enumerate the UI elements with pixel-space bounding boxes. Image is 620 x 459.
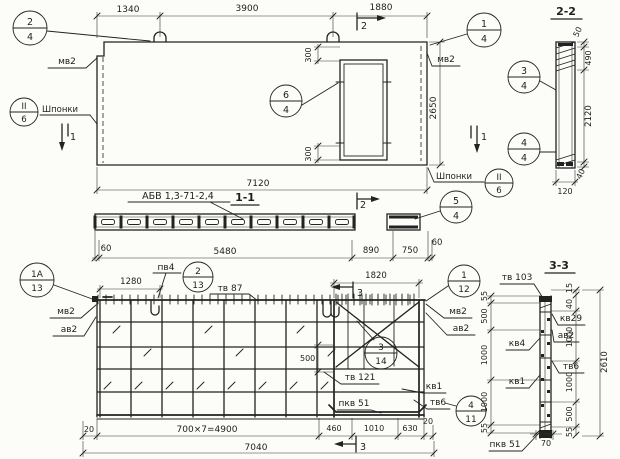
dim-s33R-40: 40 xyxy=(565,299,574,309)
callout-1a-13: 1А 13 xyxy=(20,263,95,300)
section-2-2-top-band xyxy=(558,43,573,46)
cut-2-lower-arrow xyxy=(371,196,380,202)
section-2-2-inner-lines xyxy=(559,42,572,168)
svg-text:1А: 1А xyxy=(31,270,44,280)
dim-300-bottom: 300 xyxy=(304,146,313,161)
section-2-2-title: 2-2 xyxy=(556,5,576,18)
cut-1-left-arrow xyxy=(59,142,65,151)
callout-1-12: 1 12 xyxy=(426,265,480,301)
label-kv4: кв4 xyxy=(509,339,526,349)
label-tv103: тв 103 xyxy=(502,273,533,283)
svg-text:4: 4 xyxy=(521,153,527,164)
cut-3-bottom-arrow xyxy=(334,441,343,447)
dim-1010: 1010 xyxy=(364,424,384,433)
label-shponki-left: Шпонки xyxy=(42,105,78,115)
cut-1-left-label: 1 xyxy=(70,132,76,143)
dim-70: 70 xyxy=(541,439,551,448)
rebar-plan: 1280 1820 пв4 тв 87 мв2 ав2 мв2 ав2 3 3 … xyxy=(50,263,475,457)
svg-text:14: 14 xyxy=(375,357,387,367)
cut-2-top-label: 2 xyxy=(361,21,367,32)
svg-text:6: 6 xyxy=(496,186,501,196)
dim-s22-2120: 2120 xyxy=(584,105,594,127)
dim-s33L-55a: 55 xyxy=(480,291,489,301)
dim-7120: 7120 xyxy=(247,179,270,189)
dim-s33L-500: 500 xyxy=(480,308,489,323)
svg-text:6: 6 xyxy=(21,115,26,125)
section-1-1: АБВ 1,3-71-2,4 1-1 2 60 5480 890 750 60 xyxy=(92,191,442,261)
dim-s33L-1000a: 1000 xyxy=(480,345,489,365)
mesh-vertical-bars xyxy=(100,300,317,417)
dim-s11-60L: 60 xyxy=(101,244,112,254)
dim-1280: 1280 xyxy=(120,277,142,287)
dim-1820: 1820 xyxy=(365,271,387,281)
dim-460: 460 xyxy=(326,424,341,433)
label-tv121: тв 121 xyxy=(345,373,376,383)
callout-4-4: 4 4 xyxy=(508,133,556,165)
blueprint-sheet: 1340 3900 1880 2 7120 2650 300 300 1 1 м… xyxy=(0,0,620,459)
callout-II-6-right: II 6 xyxy=(485,169,513,197)
dim-300-lines xyxy=(314,44,340,163)
label-pkv51-plan: пкв 51 xyxy=(339,399,370,409)
svg-text:5: 5 xyxy=(453,196,459,207)
s11-dim-lines xyxy=(92,231,434,261)
dim-3900: 3900 xyxy=(236,4,259,14)
svg-text:3: 3 xyxy=(521,66,527,77)
dim-20-left: 20 xyxy=(84,425,94,434)
dim-s11-750: 750 xyxy=(402,246,418,256)
label-av2-rebar-right: ав2 xyxy=(453,324,470,334)
dim-s33R-1000b: 1000 xyxy=(565,372,574,392)
label-pv4: пв4 xyxy=(158,263,175,273)
callout-5-4: 5 4 xyxy=(415,191,472,223)
svg-text:2: 2 xyxy=(195,267,201,277)
dim-700x7: 700×7=4900 xyxy=(177,425,238,435)
svg-text:12: 12 xyxy=(458,285,469,295)
svg-text:4: 4 xyxy=(521,81,527,92)
lifting-hook-bars xyxy=(151,300,339,317)
callouts: 2 4 1 4 3 4 4 4 6 4 5 4 II xyxy=(10,11,556,426)
mesh-opening-verticals xyxy=(348,300,394,369)
section-2-2-bot-band-b xyxy=(566,162,573,166)
label-tv6-s33: тв6 xyxy=(563,362,580,372)
dim-s33R-500: 500 xyxy=(565,406,574,421)
dim-s33R-15: 15 xyxy=(565,283,574,293)
dim-s22-490: 490 xyxy=(584,50,593,65)
label-mv2-rebar-left: мв2 xyxy=(57,307,75,317)
dim-s33R-55: 55 xyxy=(565,427,574,437)
label-kv1-plan: кв1 xyxy=(426,382,442,392)
panel-mark: АБВ 1,3-71-2,4 xyxy=(142,191,214,202)
s33-top-band xyxy=(539,296,552,302)
section-3-3: 3-3 тв 103 кв29 ав2 кв4 тв6 кв1 пкв 51 7… xyxy=(480,259,610,451)
dim-1820-lines xyxy=(330,279,423,298)
dim-20-right: 20 xyxy=(423,417,433,426)
callout-3-4: 3 4 xyxy=(508,61,556,93)
dim-1340: 1340 xyxy=(117,5,140,15)
plan-view: 1340 3900 1880 2 7120 2650 300 300 1 1 м… xyxy=(40,3,487,194)
svg-text:1: 1 xyxy=(481,19,487,30)
svg-text:4: 4 xyxy=(468,401,474,411)
section-1-1-title: 1-1 xyxy=(235,191,255,204)
cut-3-top-label: 3 xyxy=(357,288,363,299)
cut-3-bottom-label: 3 xyxy=(360,442,366,453)
drawing-canvas: 1340 3900 1880 2 7120 2650 300 300 1 1 м… xyxy=(0,0,620,459)
cut-1-left-line xyxy=(62,124,68,142)
callout-2-13: 2 13 xyxy=(183,262,213,292)
svg-text:4: 4 xyxy=(453,211,459,222)
dim-s22-50: 50 xyxy=(572,25,584,38)
leader-shponki-left xyxy=(40,115,97,124)
cut-1-right-arrow xyxy=(474,144,480,153)
opening-inner xyxy=(344,64,383,156)
svg-text:4: 4 xyxy=(27,32,33,43)
callout-6-4: 6 4 xyxy=(270,83,338,117)
leader-pv4 xyxy=(153,273,181,298)
dim-300-top: 300 xyxy=(304,47,313,62)
dim-500: 500 xyxy=(300,354,315,363)
svg-text:6: 6 xyxy=(283,90,289,101)
label-tv87: тв 87 xyxy=(218,284,243,294)
svg-text:4: 4 xyxy=(481,34,487,45)
s33-left-dim-lines xyxy=(487,296,540,433)
section-2-2-bot-band-a xyxy=(557,162,564,166)
s11-ribs xyxy=(94,216,356,229)
label-mv2-plan-right: мв2 xyxy=(437,55,455,65)
label-pkv51-s33: пкв 51 xyxy=(490,440,521,450)
section-2-2-width-dim xyxy=(552,170,578,186)
dim-2650: 2650 xyxy=(429,96,439,119)
dim-s22-120: 120 xyxy=(557,187,572,196)
svg-text:1: 1 xyxy=(461,271,467,281)
label-mv2-rebar-right: мв2 xyxy=(449,307,467,317)
label-kv29: кв29 xyxy=(560,314,582,324)
dim-s11-60R: 60 xyxy=(432,238,443,248)
s11-end-piece-top xyxy=(389,216,418,219)
svg-text:II: II xyxy=(21,102,26,112)
label-tv6-plan: тв6 xyxy=(430,398,447,408)
svg-text:3: 3 xyxy=(378,343,384,353)
dim-s22-40: 40 xyxy=(575,167,587,180)
dim-s33R-1000a: 1000 xyxy=(565,327,574,347)
label-mv2-plan-left: мв2 xyxy=(58,57,76,67)
dim-s11-890: 890 xyxy=(363,246,379,256)
dim-2610: 2610 xyxy=(600,351,610,373)
label-shponki-right: Шпонки xyxy=(436,172,472,182)
dim-7040: 7040 xyxy=(245,443,268,453)
svg-text:II: II xyxy=(496,173,501,183)
dim-s33L-55b: 55 xyxy=(480,423,489,433)
svg-text:2: 2 xyxy=(27,17,33,28)
svg-text:11: 11 xyxy=(465,415,476,425)
callout-II-6-left: II 6 xyxy=(10,98,38,126)
cut-2-lower-label: 2 xyxy=(360,200,366,211)
lifting-loops xyxy=(154,32,339,42)
dim-1880: 1880 xyxy=(370,3,393,13)
label-av2-rebar-left: ав2 xyxy=(61,325,78,335)
dim-s11-5480: 5480 xyxy=(214,247,237,257)
section-2-2: 2-2 50 490 2120 40 120 xyxy=(551,5,594,196)
svg-text:13: 13 xyxy=(31,284,42,294)
opening-outline xyxy=(340,60,387,160)
dim-s33L-1000b: 1000 xyxy=(480,392,489,412)
cut-1-right-line xyxy=(471,126,477,144)
callout-1-4: 1 4 xyxy=(430,13,501,47)
cut-1-right-label: 1 xyxy=(481,132,487,143)
section-3-3-title: 3-3 xyxy=(549,259,569,272)
dim-630: 630 xyxy=(402,424,417,433)
svg-text:4: 4 xyxy=(283,105,289,116)
s11-end-piece-bot xyxy=(389,226,418,229)
svg-text:13: 13 xyxy=(192,281,203,291)
label-kv1-s33: кв1 xyxy=(509,377,525,387)
svg-text:4: 4 xyxy=(521,138,527,149)
